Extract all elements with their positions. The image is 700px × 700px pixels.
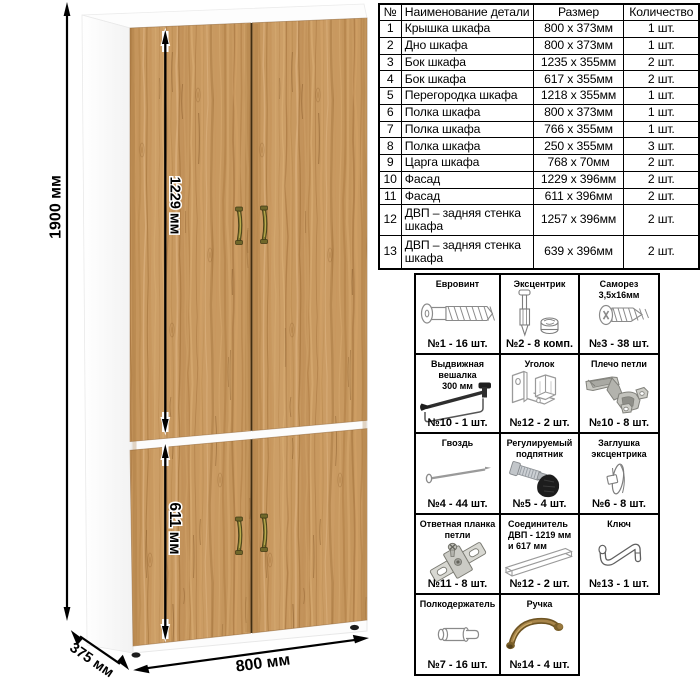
svg-text:611 мм: 611 мм — [166, 502, 183, 554]
svg-text:1900 мм: 1900 мм — [48, 175, 65, 239]
svg-text:1229 мм: 1229 мм — [167, 177, 183, 235]
